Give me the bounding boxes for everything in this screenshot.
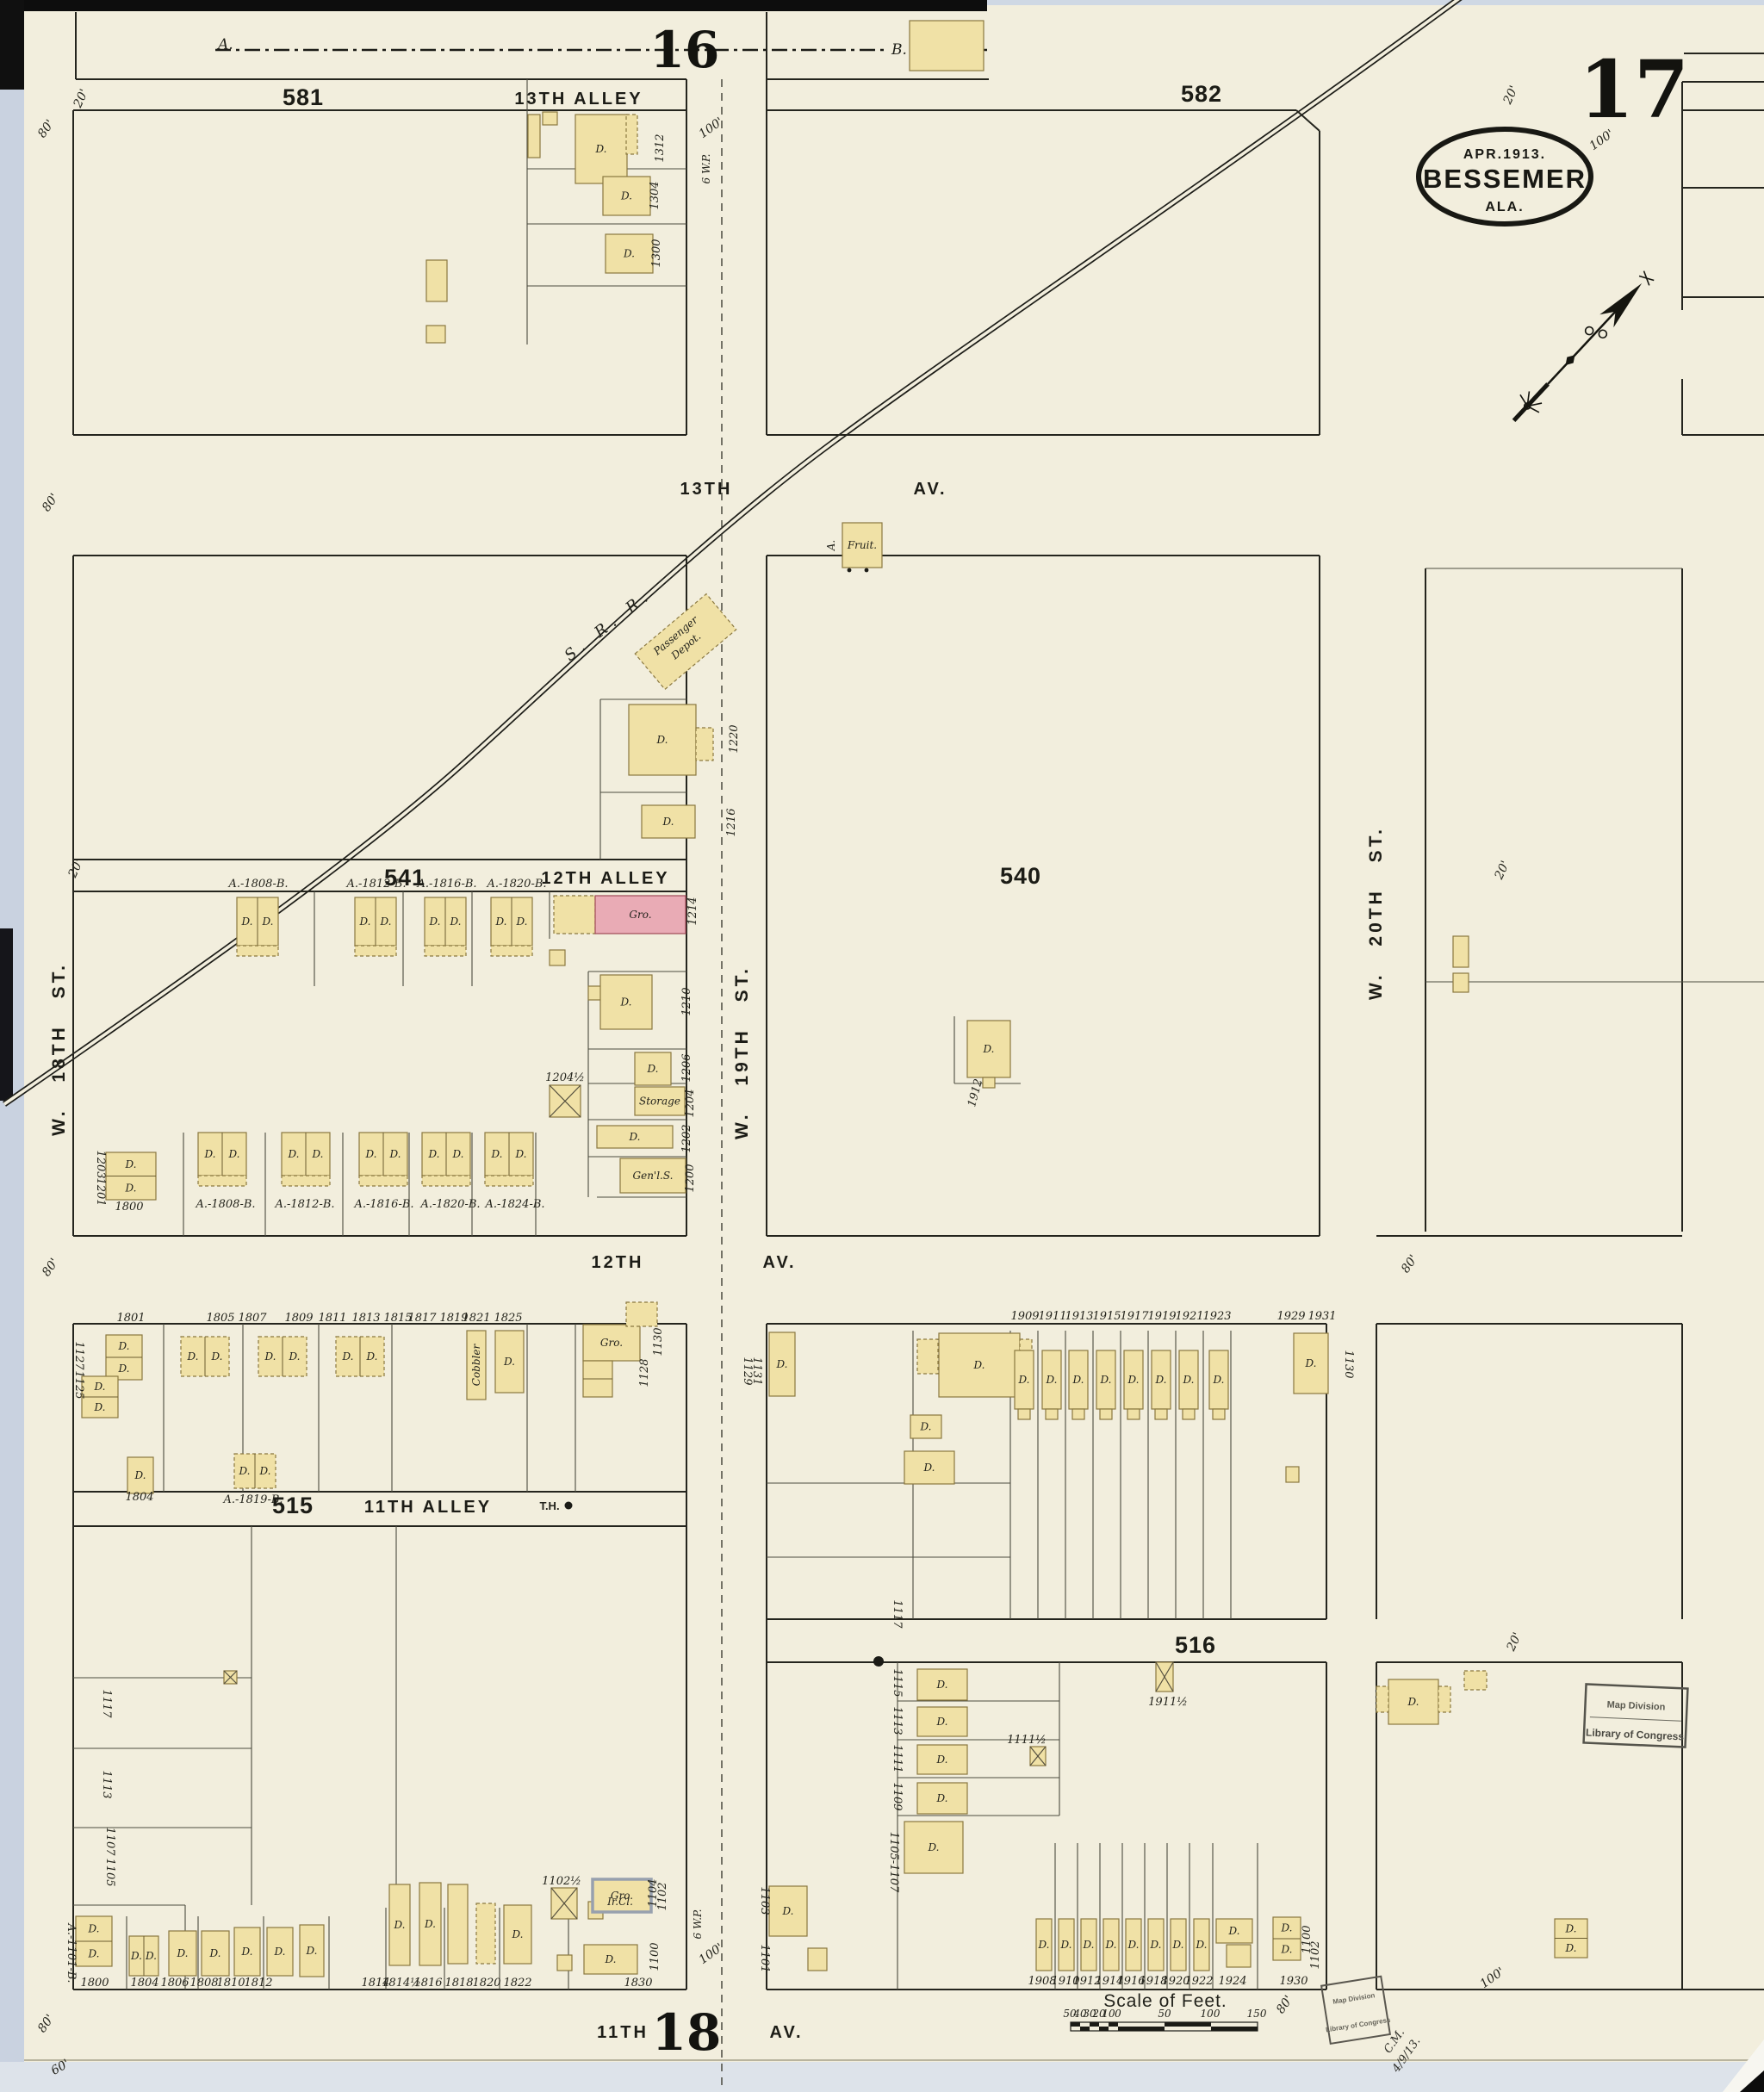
house-number: 1105-1107 <box>887 1832 900 1893</box>
street-label-11th-av: 11TH <box>597 2023 649 2042</box>
building-use-label: D. <box>1280 1922 1292 1934</box>
house-number: 1125 <box>72 1370 85 1399</box>
building <box>1453 936 1469 967</box>
block-number-540: 540 <box>1000 863 1041 889</box>
building-use-label: D. <box>186 1350 198 1363</box>
building-use-label: D. <box>494 916 506 928</box>
building-use-label: D. <box>1037 1939 1049 1951</box>
fruit-stand-dot-2 <box>865 568 869 573</box>
building <box>1453 973 1469 992</box>
house-number: 1931 <box>1307 1310 1336 1323</box>
building: D. <box>1059 1919 1074 1971</box>
building-use-label: D. <box>176 1947 188 1959</box>
building-use-label: D. <box>365 1350 377 1363</box>
building: D. <box>1042 1350 1061 1419</box>
map-annotation: A. <box>825 540 837 551</box>
house-number: 1909 <box>1010 1310 1039 1323</box>
house-number: 1107 <box>103 1827 116 1856</box>
building: D. <box>910 1415 941 1438</box>
building-use-label: D. <box>1127 1374 1139 1386</box>
building <box>550 950 565 965</box>
scale-tick-label: 150 <box>1247 2008 1267 2020</box>
sheet-number: 17 <box>1579 43 1689 136</box>
house-number: 1807 <box>238 1312 267 1325</box>
house-number: 1929 <box>1276 1310 1305 1323</box>
map-annotation: Ir.Cl. <box>606 1896 633 1908</box>
lot-label: A.-1820-B. <box>486 878 546 891</box>
building-use-label: D. <box>117 1340 129 1352</box>
house-number: 1825 <box>494 1312 522 1325</box>
house-number: 1113 <box>891 1706 904 1735</box>
building-use-label: D. <box>628 1131 640 1143</box>
building: D. <box>1015 1350 1034 1419</box>
building: Gro. <box>595 896 686 934</box>
house-number: 1115 <box>891 1668 904 1697</box>
lot-label: A.-1812-B. <box>274 1198 334 1211</box>
block-number-541: 541 <box>384 865 425 891</box>
building: D. <box>169 1931 196 1976</box>
house-number: 1105 <box>103 1858 116 1886</box>
building: D. <box>495 1331 524 1393</box>
building: D. <box>967 1021 1010 1088</box>
house-number: 1800 <box>115 1201 143 1214</box>
building-use-label: D. <box>124 1182 136 1194</box>
building-stoop <box>1100 1409 1112 1419</box>
map-annotation: 6 W.P. <box>692 1909 704 1940</box>
building: D.D. <box>234 1454 276 1488</box>
building-use-label: D. <box>1564 1922 1576 1934</box>
building: D.D. <box>491 897 532 956</box>
building-use-label: D. <box>87 1948 99 1960</box>
building-use-label: D. <box>919 1421 931 1433</box>
street-label-12th-alley: 12TH ALLEY <box>541 869 669 888</box>
building-use-label: D. <box>427 1148 439 1160</box>
building <box>448 1884 468 1964</box>
building: D. <box>1126 1919 1141 1971</box>
house-number: 1304 <box>649 181 661 209</box>
scan-bottom-margin <box>0 2062 1764 2092</box>
house-number: 1822 <box>503 1977 531 1990</box>
house-number: 1127 <box>72 1341 85 1370</box>
house-number: 1913 <box>1065 1310 1093 1323</box>
stamp-state: ALA. <box>1485 200 1524 214</box>
block-number-515: 515 <box>272 1493 314 1518</box>
lot-label: A.-1808-B. <box>227 878 288 891</box>
building-use-label: D. <box>935 1792 947 1804</box>
building-use-label: D. <box>364 1148 376 1160</box>
building-use-label: D. <box>93 1401 105 1413</box>
house-number: 1102 <box>1309 1940 1322 1969</box>
house-number: 1813 <box>351 1312 380 1325</box>
building-use-label: Storage <box>639 1096 680 1108</box>
building-footprint <box>1464 1671 1487 1690</box>
scale-title: Scale of Feet. <box>1103 1991 1227 2011</box>
building-footprint <box>626 1302 657 1326</box>
building-porch <box>237 946 278 956</box>
building-use-label: D. <box>264 1350 276 1363</box>
outbuilding <box>550 1085 581 1117</box>
street-label-13th-alley: 13TH ALLEY <box>514 90 643 109</box>
boundary-label-b: B. <box>891 41 907 59</box>
building-use-label: D. <box>428 916 440 928</box>
building-use-label: D. <box>379 916 391 928</box>
adjacent-sheet-number-top: 16 <box>650 21 720 79</box>
street-label-12th-av-suffix: AV. <box>762 1253 796 1272</box>
building-stoop <box>1127 1409 1140 1419</box>
house-number: 1103 <box>758 1886 771 1915</box>
building <box>426 260 447 301</box>
building-use-label: D. <box>1171 1939 1183 1951</box>
building: D. <box>917 1783 967 1814</box>
building-use-label: D. <box>1564 1942 1576 1954</box>
building-use-label: D. <box>982 1043 994 1055</box>
building-porch <box>422 1176 470 1186</box>
building-use-label: D. <box>203 1148 215 1160</box>
boundary-label-a: A. <box>216 36 233 53</box>
building-porch <box>485 1176 533 1186</box>
building: D. <box>939 1333 1020 1397</box>
building-use-label: D. <box>781 1905 793 1917</box>
building-stoop <box>1183 1409 1195 1419</box>
house-number: 1919 <box>1147 1310 1176 1323</box>
building: D.D. <box>106 1152 156 1200</box>
building-footprint <box>626 115 637 154</box>
house-number: 1830 <box>624 1977 652 1990</box>
building-use-label: D. <box>503 1356 515 1368</box>
house-number: 1214 <box>686 897 699 925</box>
house-number: 1816 <box>413 1977 442 1990</box>
building-footprint <box>1453 936 1469 967</box>
building-use-label: Gro. <box>629 909 651 921</box>
building: D.D. <box>106 1335 142 1380</box>
street-label-w-20th-st: W. 20TH ST. <box>1366 826 1386 1000</box>
building-footprint <box>910 21 984 71</box>
building-use-label: D. <box>604 1953 616 1965</box>
building: Storage <box>635 1087 685 1115</box>
building <box>543 112 557 125</box>
block-number-581: 581 <box>283 84 324 110</box>
building: D. <box>389 1884 410 1965</box>
outbuilding <box>1156 1662 1173 1692</box>
building: D. <box>1152 1350 1171 1419</box>
building: D.D. <box>422 1133 470 1186</box>
th-marker-dot <box>565 1502 573 1510</box>
lot-label: A.-1820-B. <box>419 1198 480 1211</box>
building-use-label: D. <box>1082 1939 1094 1951</box>
building <box>557 1955 572 1971</box>
building-use-label: D. <box>1149 1939 1161 1951</box>
lot-label: A.-1808-B. <box>195 1198 255 1211</box>
building-use-label: D. <box>1280 1944 1292 1956</box>
building: D.D. <box>237 897 278 956</box>
house-number: 1131 <box>750 1356 763 1385</box>
building-use-label: D. <box>287 1148 299 1160</box>
building-use-label: D. <box>927 1841 939 1853</box>
building: D. <box>635 1052 671 1085</box>
outbuilding <box>224 1671 237 1684</box>
building-use-label: D. <box>130 1950 142 1962</box>
house-number: 1821 <box>462 1312 490 1325</box>
building: D. <box>597 1126 673 1148</box>
building-use-label: D. <box>1099 1374 1111 1386</box>
building-use-label: D. <box>1045 1374 1057 1386</box>
house-number: 1924 <box>1218 1975 1246 1988</box>
house-number: 1809 <box>284 1312 313 1325</box>
building-use-label: D. <box>972 1359 984 1371</box>
building: D. <box>904 1451 954 1484</box>
lot-label: A.-1101-B. <box>65 1922 78 1983</box>
building <box>1438 1686 1450 1712</box>
building-stoop <box>1213 1409 1225 1419</box>
building: D. <box>1171 1919 1186 1971</box>
house-number: 1200 <box>684 1164 697 1192</box>
map-annotation: 6 W.P. <box>700 154 712 184</box>
building <box>1227 1945 1251 1967</box>
house-number: 1921 <box>1175 1310 1203 1323</box>
building-use-label: D. <box>305 1945 317 1957</box>
building: D. <box>584 1945 637 1974</box>
building-footprint <box>426 260 447 301</box>
house-number: 1220 <box>728 724 741 753</box>
building: D.D. <box>198 1133 246 1186</box>
building-use-label: D. <box>935 1754 947 1766</box>
building <box>910 21 984 71</box>
building <box>1286 1467 1299 1482</box>
house-number: 1922 <box>1184 1975 1213 1988</box>
house-number: 1113 <box>100 1770 113 1798</box>
building-use-label: D. <box>1182 1374 1194 1386</box>
lot-label: A.-1816-B. <box>353 1198 413 1211</box>
building-use-label: D. <box>358 916 370 928</box>
building <box>554 896 595 934</box>
building-use-label: D. <box>240 1946 252 1958</box>
house-number: 1806 <box>160 1977 189 1990</box>
building-use-label: D. <box>1212 1374 1224 1386</box>
house-number: 1817 <box>407 1312 437 1325</box>
house-number: 1800 <box>80 1977 109 1990</box>
house-number: 1804 <box>125 1491 153 1504</box>
house-number: 1312 <box>654 133 667 162</box>
building-use-label: D. <box>1304 1357 1316 1369</box>
building <box>917 1339 938 1374</box>
building-use-label: D. <box>273 1946 285 1958</box>
building-footprint <box>543 112 557 125</box>
house-number: 1805 <box>206 1312 234 1325</box>
building: D. <box>606 234 653 273</box>
house-number: 1117 <box>891 1599 904 1629</box>
building-use-label: D. <box>134 1469 146 1481</box>
building <box>626 1302 657 1326</box>
building: D. <box>1081 1919 1096 1971</box>
building-use-label: D. <box>1154 1374 1166 1386</box>
building-use-label: D. <box>1017 1374 1029 1386</box>
building-use-label: D. <box>922 1462 935 1474</box>
building-use-label: D. <box>424 1918 436 1930</box>
building-use-label: D. <box>775 1358 787 1370</box>
house-number: 1300 <box>650 239 663 267</box>
building-footprint <box>1286 1467 1299 1482</box>
building-stoop <box>1046 1409 1058 1419</box>
building <box>808 1948 827 1971</box>
building-use-label: D. <box>93 1381 105 1393</box>
building-porch <box>198 1176 246 1186</box>
building-footprint <box>550 950 565 965</box>
building-footprint <box>476 1903 495 1964</box>
building-footprint <box>1376 1686 1388 1712</box>
adjacent-sheet-number-bottom: 18 <box>652 2003 722 2062</box>
house-number: 1930 <box>1279 1975 1307 1988</box>
building: D. <box>1209 1350 1228 1419</box>
building: D. <box>904 1822 963 1873</box>
building-use-label: D. <box>514 1148 526 1160</box>
building-use-label: D. <box>1104 1939 1116 1951</box>
building-footprint <box>557 1955 572 1971</box>
building-use-label: D. <box>1195 1939 1207 1951</box>
building-use-label: D. <box>451 1148 463 1160</box>
building-use-label: D. <box>258 1465 270 1477</box>
building-use-label: D. <box>288 1350 300 1363</box>
street-label-11th-av-suffix: AV. <box>769 2023 803 2042</box>
house-number: 1101 <box>758 1944 771 1972</box>
building-use-label: D. <box>1127 1939 1139 1951</box>
house-number: 1130 <box>1342 1350 1355 1378</box>
house-number: 1128 <box>638 1358 651 1387</box>
block-number-516: 516 <box>1175 1632 1216 1658</box>
building-porch <box>491 946 532 956</box>
building-use-label: D. <box>393 1919 405 1931</box>
lot-label: A.-1824-B. <box>484 1198 544 1211</box>
building-footprint <box>808 1948 827 1971</box>
building-use-label: D. <box>619 996 631 1009</box>
house-number: 1808 <box>189 1977 218 1990</box>
house-number: 1111½ <box>1007 1734 1047 1747</box>
building: D. <box>917 1745 967 1774</box>
building-use-label: D. <box>511 1928 523 1940</box>
building: D. <box>1148 1919 1164 1971</box>
house-number: 1203 <box>94 1150 107 1178</box>
building-use-label: Gro. <box>600 1337 623 1349</box>
building-use-label: D. <box>117 1363 129 1375</box>
house-number: 1206 <box>680 1053 693 1082</box>
house-number: 1111 <box>891 1744 904 1772</box>
building-use-label: D. <box>388 1148 401 1160</box>
building-footprint <box>917 1339 938 1374</box>
building: D.D. <box>82 1376 118 1418</box>
sanborn-map-sheet: D.D.D.Fruit.D.D.D.D.D.D.D.D.D.D.Gro.D.D.… <box>0 0 1764 2092</box>
building: Cobbler <box>467 1331 486 1400</box>
building-use-label: D. <box>210 1350 222 1363</box>
house-number: 1102 <box>656 1882 669 1910</box>
building-use-label: D. <box>208 1947 220 1959</box>
house-number: 1811 <box>318 1312 346 1325</box>
building: D.D. <box>485 1133 533 1186</box>
building: D.D. <box>258 1337 307 1376</box>
house-number: 1917 <box>1120 1310 1149 1323</box>
building-use-label: D. <box>515 916 527 928</box>
house-number: 1801 <box>116 1312 145 1325</box>
fruit-stand-dot <box>848 568 852 573</box>
building: D.D. <box>129 1936 158 1976</box>
scan-artifact-top-left <box>0 0 24 90</box>
building-use-label: D. <box>646 1063 658 1075</box>
building: D.D. <box>425 897 466 956</box>
block-number-582: 582 <box>1181 81 1222 107</box>
street-label-12th-av: 12TH <box>592 1253 644 1272</box>
building: D. <box>769 1886 807 1936</box>
building-use-label: D. <box>449 916 461 928</box>
street-label-w-18th-st: W. 18TH ST. <box>49 962 69 1136</box>
building: Gro. <box>583 1325 640 1361</box>
building <box>476 1903 495 1964</box>
building: D. <box>769 1332 795 1396</box>
building: D. <box>1103 1919 1119 1971</box>
street-label-13th-av: 13TH <box>680 480 733 499</box>
house-number: 1911 <box>1038 1310 1066 1323</box>
building: D.D. <box>1273 1917 1301 1960</box>
house-number: 1804 <box>130 1977 158 1990</box>
house-number: 1820 <box>472 1977 500 1990</box>
building-footprint <box>1453 973 1469 992</box>
building-footprint <box>554 896 595 934</box>
building <box>1464 1671 1487 1690</box>
building-use-label: Fruit. <box>847 539 877 551</box>
building: Fruit. <box>842 523 882 568</box>
house-number: 1130 <box>652 1327 665 1356</box>
house-number: 1915 <box>1092 1310 1121 1323</box>
building-use-label: D. <box>124 1158 136 1170</box>
building-porch <box>425 946 466 956</box>
building: D. <box>267 1927 293 1976</box>
building-stoop <box>1155 1409 1167 1419</box>
building-use-label: D. <box>935 1679 947 1691</box>
house-number: 1100 <box>649 1942 661 1971</box>
building-use-label: D. <box>240 916 252 928</box>
building <box>426 326 445 343</box>
building: D. <box>917 1707 967 1736</box>
building: D. <box>419 1883 441 1965</box>
building-footprint <box>426 326 445 343</box>
building-footprint <box>528 115 540 158</box>
building-use-label: D. <box>227 1148 239 1160</box>
building-porch <box>359 1176 407 1186</box>
building: D. <box>300 1925 324 1977</box>
house-number: 1202 <box>680 1124 693 1152</box>
building: D.D. <box>355 897 396 956</box>
building-footprint <box>448 1884 468 1964</box>
building-footprint <box>1438 1686 1450 1712</box>
building: D. <box>1388 1679 1438 1724</box>
house-number: 1812 <box>244 1977 272 1990</box>
building-use-label: D. <box>1071 1374 1084 1386</box>
building: D.D. <box>1555 1919 1587 1958</box>
building: D.D. <box>336 1337 384 1376</box>
house-number: 1102½ <box>542 1875 581 1888</box>
street-label-13th-av-suffix: AV. <box>913 480 947 499</box>
building <box>696 728 713 760</box>
building: D.D. <box>282 1133 330 1186</box>
house-number: 1117 <box>100 1689 113 1718</box>
building-stoop <box>1072 1409 1084 1419</box>
building-use-label: D. <box>341 1350 353 1363</box>
house-number: 1201 <box>94 1177 107 1206</box>
building: D.D. <box>76 1916 112 1966</box>
building-footprint <box>696 728 713 760</box>
house-number: 1216 <box>725 808 738 836</box>
building: D. <box>575 115 627 183</box>
building-footprint <box>1227 1945 1251 1967</box>
building: D. <box>127 1457 153 1493</box>
building-use-label: Gen'l.S. <box>633 1170 674 1182</box>
